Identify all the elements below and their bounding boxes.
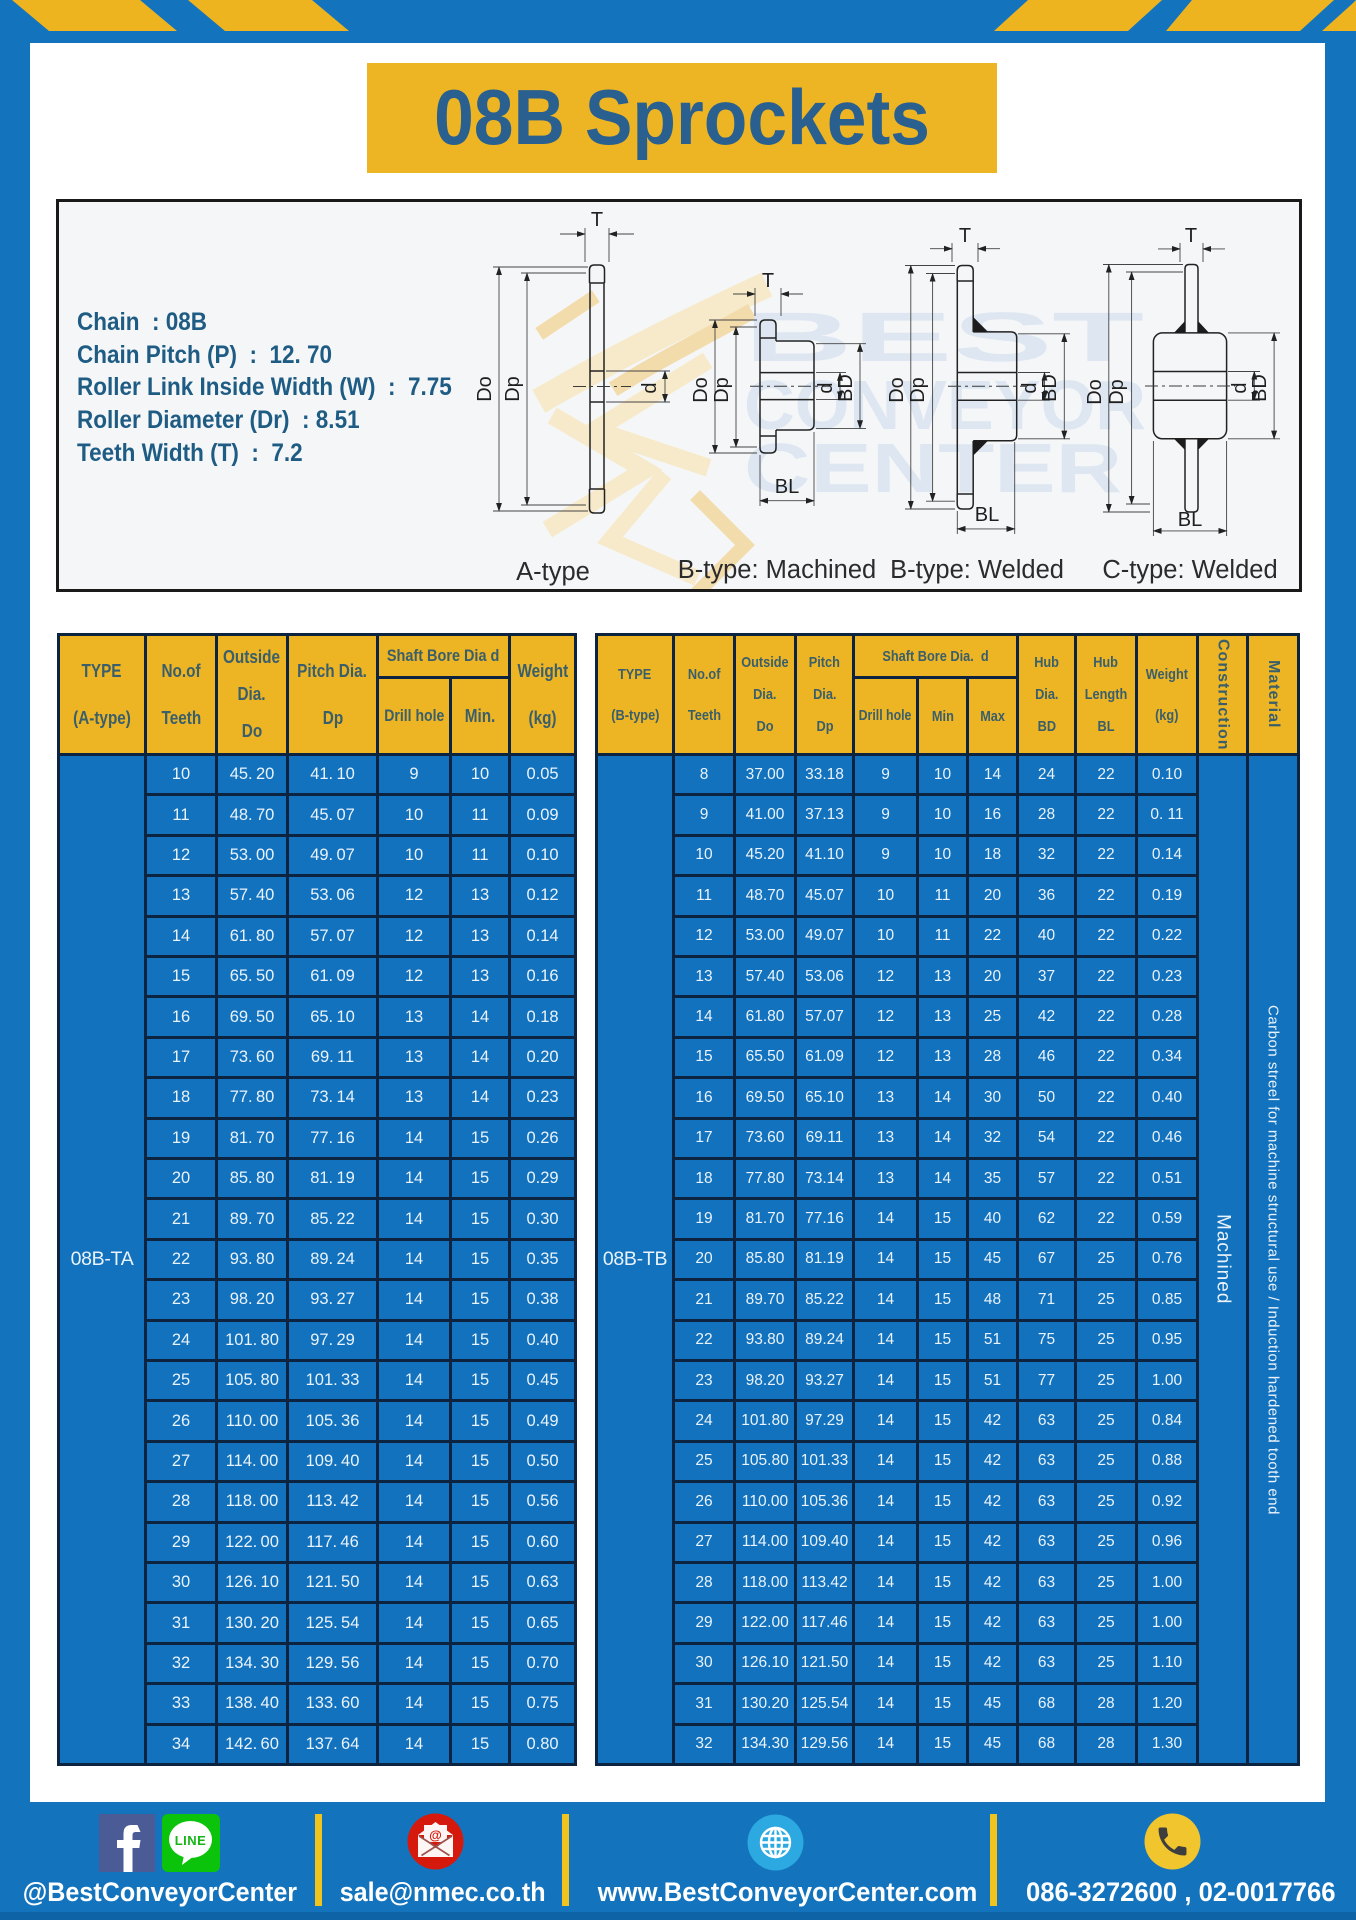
svg-text:BL: BL (975, 504, 999, 526)
svg-text:T: T (959, 225, 971, 247)
svg-text:T: T (762, 270, 774, 292)
svg-text:C-type: Welded: C-type: Welded (1102, 556, 1277, 584)
svg-text:BD: BD (1249, 374, 1271, 402)
svg-text:Dp: Dp (1106, 379, 1128, 405)
svg-text:Dp: Dp (907, 377, 929, 403)
svg-text:A-type: A-type (516, 558, 590, 586)
svg-text:T: T (591, 209, 603, 231)
svg-text:BL: BL (775, 476, 799, 498)
svg-text:d: d (1229, 382, 1251, 393)
svg-text:Do: Do (690, 377, 712, 403)
svg-text:B-type: Welded: B-type: Welded (890, 556, 1064, 584)
svg-text:BEST: BEST (744, 298, 1144, 376)
svg-text:B-type: Machined: B-type: Machined (678, 556, 876, 584)
svg-text:BD: BD (1039, 374, 1061, 402)
svg-text:d: d (639, 382, 661, 393)
svg-text:@: @ (429, 1828, 442, 1843)
svg-text:d: d (1019, 382, 1041, 393)
svg-text:Do: Do (886, 377, 908, 403)
svg-text:Do: Do (474, 376, 496, 402)
svg-text:T: T (1185, 225, 1197, 247)
svg-text:Dp: Dp (502, 376, 524, 402)
svg-text:d: d (815, 382, 837, 393)
svg-text:BL: BL (1178, 509, 1202, 531)
svg-text:BD: BD (835, 374, 857, 402)
svg-text:Do: Do (1084, 379, 1106, 405)
svg-text:LINE: LINE (175, 1833, 207, 1848)
svg-text:Dp: Dp (711, 377, 733, 403)
